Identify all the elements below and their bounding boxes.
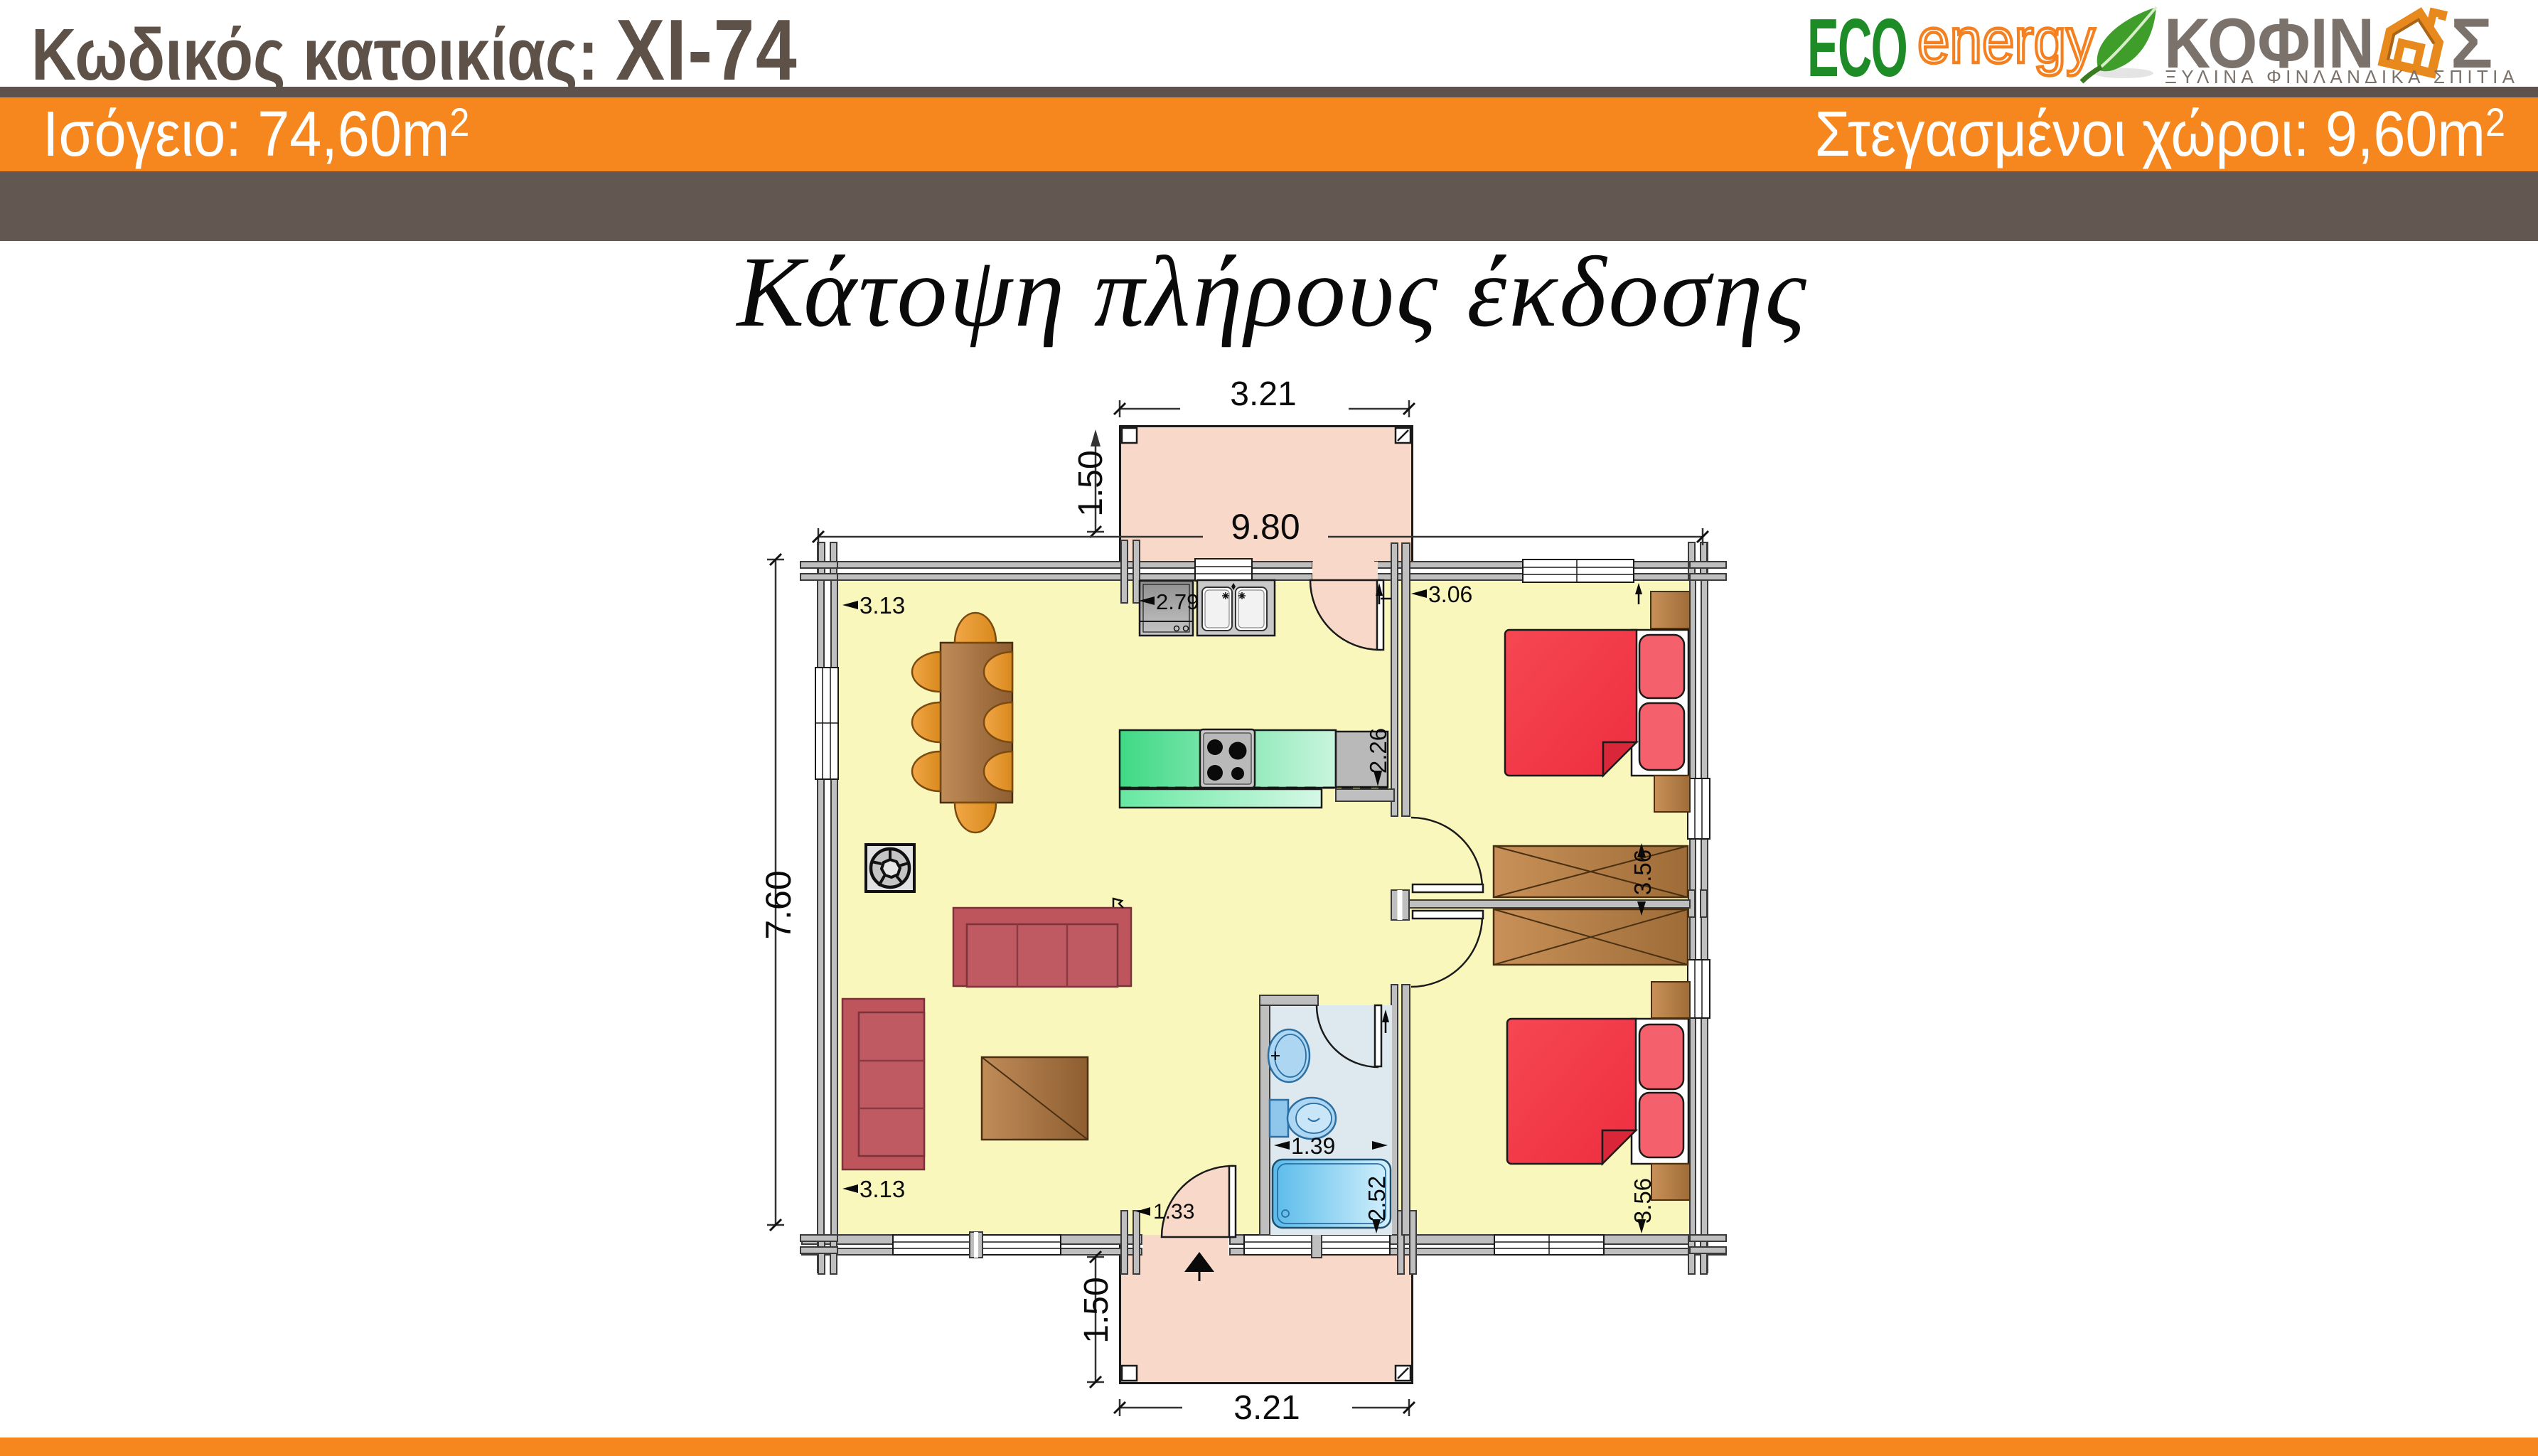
- svg-text:3.56: 3.56: [1629, 1178, 1656, 1224]
- svg-text:2.26: 2.26: [1365, 728, 1391, 773]
- svg-text:3.21: 3.21: [1233, 1389, 1300, 1427]
- svg-text:1.50: 1.50: [1072, 450, 1110, 516]
- svg-text:3.13: 3.13: [860, 592, 905, 619]
- svg-text:ΞΥΛΙΝΑ ΦΙΝΛΑΝΔΙΚΑ ΣΠΙΤΙΑ: ΞΥΛΙΝΑ ΦΙΝΛΑΝΔΙΚΑ ΣΠΙΤΙΑ: [2165, 66, 2515, 87]
- svg-text:9.80: 9.80: [1231, 507, 1300, 547]
- svg-text:1.33: 1.33: [1153, 1200, 1194, 1224]
- svg-text:energy: energy: [1917, 6, 2095, 77]
- svg-text:3.13: 3.13: [860, 1176, 905, 1202]
- svg-text:1.50: 1.50: [1078, 1277, 1115, 1343]
- svg-text:2.52: 2.52: [1364, 1176, 1390, 1221]
- svg-text:1.39: 1.39: [1291, 1133, 1335, 1159]
- svg-text:ECO: ECO: [1807, 1, 1907, 94]
- svg-text:3.06: 3.06: [1428, 582, 1472, 607]
- svg-text:7.60: 7.60: [759, 870, 798, 939]
- svg-text:3.21: 3.21: [1230, 377, 1296, 413]
- svg-text:2.79: 2.79: [1156, 589, 1199, 614]
